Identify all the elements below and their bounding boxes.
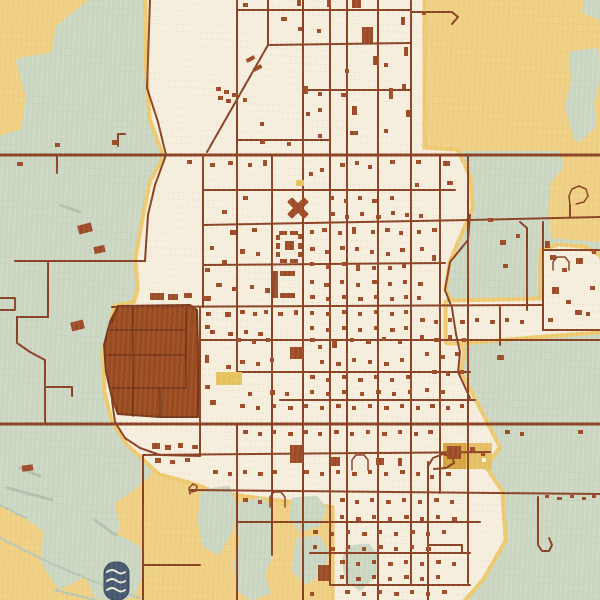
building-footprint: [372, 199, 377, 203]
building-footprint: [342, 375, 346, 379]
pool-feature: [104, 562, 129, 600]
building-footprint: [320, 168, 324, 172]
building-footprint: [310, 338, 315, 342]
building-footprint: [276, 243, 280, 249]
building-footprint: [388, 517, 392, 521]
building-footprint: [265, 288, 270, 293]
building-footprint: [248, 392, 252, 396]
building-footprint: [592, 495, 596, 498]
building-footprint: [298, 27, 302, 31]
building-footprint: [303, 86, 308, 94]
building-footprint: [326, 265, 331, 269]
building-footprint: [317, 29, 321, 33]
building-footprint: [406, 110, 410, 117]
building-footprint: [342, 326, 347, 330]
building-footprint: [344, 199, 348, 203]
building-footprint: [17, 162, 23, 166]
building-footprint: [566, 300, 571, 304]
building-footprint: [422, 11, 426, 15]
building-footprint: [372, 280, 377, 284]
building-footprint: [232, 93, 237, 97]
building-footprint: [400, 248, 405, 252]
building-footprint: [187, 160, 192, 164]
building-footprint: [575, 310, 582, 315]
building-footprint: [326, 328, 330, 332]
building-footprint: [372, 515, 376, 519]
building-footprint: [590, 286, 595, 290]
building-footprint: [434, 498, 439, 502]
building-footprint: [390, 196, 394, 200]
building-footprint: [362, 592, 366, 596]
building-footprint: [420, 517, 424, 521]
building-footprint: [330, 532, 334, 536]
building-footprint: [222, 210, 227, 214]
building-footprint: [330, 212, 335, 216]
building-footprint: [155, 458, 161, 463]
building-footprint: [417, 296, 421, 300]
building-footprint: [240, 404, 245, 408]
building-footprint: [368, 404, 372, 408]
building-footprint: [298, 252, 302, 257]
building-footprint: [310, 592, 314, 596]
building-footprint: [426, 592, 430, 596]
building-footprint: [248, 163, 252, 167]
building-footprint: [475, 318, 479, 322]
building-footprint: [420, 247, 424, 251]
building-footprint: [276, 235, 280, 240]
building-footprint: [371, 230, 375, 234]
building-footprint: [218, 96, 223, 100]
building-footprint: [270, 358, 274, 362]
building-footprint: [384, 406, 389, 410]
building-footprint: [446, 472, 451, 476]
building-footprint: [550, 255, 556, 260]
building-footprint: [228, 472, 232, 476]
building-footprint: [264, 310, 268, 314]
building-footprint: [582, 497, 586, 500]
building-footprint: [386, 252, 390, 256]
building-footprint: [382, 337, 386, 341]
building-footprint: [586, 312, 590, 316]
building-footprint: [280, 293, 295, 298]
building-footprint: [447, 181, 453, 185]
building-footprint: [384, 63, 388, 67]
building-footprint: [216, 372, 242, 385]
building-footprint: [256, 252, 260, 256]
building-footprint: [450, 500, 454, 504]
building-footprint: [355, 247, 359, 251]
building-footprint: [332, 340, 337, 348]
building-footprint: [400, 404, 404, 408]
building-footprint: [404, 560, 408, 564]
building-footprint: [368, 165, 372, 169]
building-footprint: [358, 328, 362, 332]
building-footprint: [240, 249, 245, 254]
building-footprint: [205, 355, 209, 363]
building-footprint: [440, 390, 445, 394]
building-footprint: [340, 246, 345, 250]
building-footprint: [256, 406, 260, 410]
building-footprint: [382, 432, 387, 436]
building-footprint: [390, 297, 394, 301]
building-footprint: [432, 255, 436, 261]
green-area: [569, 52, 597, 138]
building-footprint: [326, 297, 330, 301]
building-footprint: [318, 565, 330, 581]
building-footprint: [503, 264, 508, 268]
building-footprint: [178, 443, 183, 448]
building-footprint: [345, 215, 349, 219]
building-footprint: [296, 180, 304, 186]
building-footprint: [440, 355, 445, 359]
building-footprint: [447, 446, 461, 459]
building-footprint: [378, 590, 382, 594]
building-footprint: [418, 500, 422, 504]
building-footprint: [390, 312, 394, 316]
building-footprint: [306, 112, 310, 116]
building-footprint: [390, 378, 394, 382]
building-footprint: [426, 532, 430, 536]
building-footprint: [205, 385, 210, 389]
building-footprint: [290, 259, 298, 263]
building-footprint: [310, 311, 314, 315]
building-footprint: [414, 432, 418, 436]
building-footprint: [403, 280, 407, 284]
building-footprint: [552, 287, 559, 294]
map-canvas[interactable]: [0, 0, 600, 600]
building-footprint: [368, 470, 372, 474]
building-footprint: [260, 122, 264, 126]
building-footprint: [304, 430, 308, 434]
building-footprint: [152, 443, 160, 449]
building-footprint: [420, 577, 424, 581]
building-footprint: [150, 293, 164, 300]
building-footprint: [310, 280, 314, 284]
building-footprint: [373, 56, 379, 65]
building-footprint: [426, 547, 431, 551]
building-footprint: [358, 196, 362, 200]
building-footprint: [398, 340, 402, 344]
building-footprint: [326, 392, 331, 396]
building-footprint: [352, 227, 356, 234]
building-footprint: [287, 142, 291, 146]
building-footprint: [448, 335, 452, 339]
building-footprint: [376, 458, 384, 465]
building-footprint: [391, 211, 395, 215]
building-footprint: [404, 326, 408, 330]
building-footprint: [420, 318, 425, 322]
building-footprint: [243, 196, 248, 200]
building-footprint: [258, 472, 263, 476]
building-footprint: [436, 515, 440, 519]
building-footprint: [417, 230, 421, 234]
building-footprint: [545, 495, 549, 498]
building-footprint: [216, 87, 221, 91]
building-footprint: [384, 362, 389, 366]
building-footprint: [358, 312, 362, 316]
building-footprint: [310, 326, 314, 330]
building-footprint: [385, 228, 390, 232]
building-footprint: [228, 161, 233, 165]
building-footprint: [520, 432, 524, 436]
building-footprint: [434, 338, 439, 342]
building-footprint: [378, 545, 383, 549]
building-footprint: [404, 575, 409, 579]
building-footprint: [336, 362, 341, 366]
building-footprint: [278, 312, 283, 316]
building-footprint: [562, 268, 567, 272]
building-footprint: [288, 432, 293, 436]
building-footprint: [310, 262, 314, 266]
building-footprint: [341, 93, 346, 97]
building-footprint: [388, 577, 392, 581]
building-footprint: [210, 246, 214, 250]
building-footprint: [324, 283, 329, 287]
building-footprint: [418, 282, 423, 286]
building-footprint: [402, 84, 406, 89]
building-footprint: [340, 515, 344, 519]
building-footprint: [398, 458, 402, 466]
building-footprint: [443, 161, 450, 166]
building-footprint: [368, 360, 372, 364]
building-footprint: [570, 495, 574, 498]
building-footprint: [362, 532, 367, 536]
building-footprint: [243, 3, 248, 7]
building-footprint: [372, 266, 376, 270]
building-footprint: [425, 352, 429, 356]
building-footprint: [322, 228, 327, 232]
building-footprint: [252, 228, 257, 232]
building-footprint: [342, 310, 346, 314]
building-footprint: [226, 365, 231, 369]
building-footprint: [240, 360, 245, 364]
building-footprint: [372, 560, 376, 564]
building-footprint: [420, 335, 424, 339]
building-footprint: [378, 530, 382, 534]
building-footprint: [310, 247, 315, 251]
building-footprint: [374, 375, 378, 379]
building-footprint: [326, 312, 331, 316]
building-footprint: [253, 312, 257, 316]
building-footprint: [250, 285, 254, 289]
building-footprint: [185, 458, 190, 462]
building-footprint: [318, 92, 322, 96]
building-footprint: [401, 17, 405, 25]
building-footprint: [342, 390, 346, 394]
building-footprint: [192, 445, 198, 449]
building-footprint: [243, 430, 248, 434]
building-footprint: [213, 470, 218, 474]
building-footprint: [310, 230, 314, 234]
building-footprint: [455, 352, 459, 356]
building-footprint: [384, 129, 388, 133]
building-footprint: [370, 498, 374, 502]
building-footprint: [462, 338, 466, 342]
building-footprint: [360, 212, 364, 216]
building-footprint: [310, 295, 315, 299]
building-footprint: [442, 530, 446, 534]
building-footprint: [392, 392, 396, 396]
building-footprint: [394, 592, 399, 596]
building-footprint: [362, 27, 373, 43]
building-footprint: [290, 231, 298, 235]
building-footprint: [404, 515, 409, 519]
building-footprint: [406, 375, 410, 379]
building-footprint: [112, 140, 118, 145]
building-footprint: [170, 460, 175, 464]
building-footprint: [428, 430, 433, 434]
building-footprint: [318, 432, 322, 436]
building-footprint: [203, 296, 211, 301]
building-footprint: [281, 17, 287, 21]
building-footprint: [165, 445, 171, 450]
building-footprint: [408, 390, 412, 394]
building-footprint: [260, 140, 265, 144]
building-footprint: [168, 294, 178, 300]
building-footprint: [205, 268, 210, 272]
building-footprint: [290, 445, 302, 463]
building-footprint: [576, 258, 583, 264]
building-footprint: [330, 547, 335, 551]
building-footprint: [184, 293, 192, 298]
building-footprint: [320, 406, 324, 410]
green-area: [586, 0, 600, 16]
building-footprint: [288, 406, 293, 410]
campus-area: [104, 305, 198, 417]
building-footprint: [285, 241, 294, 250]
building-footprint: [304, 470, 309, 474]
building-footprint: [350, 338, 354, 342]
building-footprint: [222, 260, 227, 264]
building-footprint: [358, 378, 363, 382]
building-footprint: [430, 404, 435, 408]
building-footprint: [294, 310, 298, 315]
building-footprint: [446, 406, 450, 410]
building-footprint: [460, 370, 464, 374]
building-footprint: [366, 430, 370, 434]
building-footprint: [318, 108, 322, 112]
building-footprint: [490, 320, 495, 324]
building-footprint: [356, 577, 361, 581]
building-footprint: [578, 430, 583, 434]
building-footprint: [460, 404, 464, 408]
building-footprint: [399, 231, 403, 235]
building-footprint: [320, 472, 324, 476]
building-footprint: [313, 530, 318, 534]
building-footprint: [276, 252, 280, 257]
building-footprint: [336, 470, 340, 474]
building-footprint: [442, 590, 447, 594]
building-footprint: [297, 0, 301, 6]
building-footprint: [394, 547, 398, 551]
building-footprint: [258, 332, 263, 336]
building-footprint: [55, 143, 60, 147]
building-footprint: [470, 447, 475, 452]
building-footprint: [346, 545, 350, 549]
pond: [236, 500, 272, 598]
building-footprint: [330, 196, 334, 200]
building-footprint: [356, 264, 360, 271]
building-footprint: [404, 310, 408, 314]
building-footprint: [216, 283, 222, 287]
building-footprint: [481, 452, 485, 456]
building-footprint: [327, 0, 331, 7]
building-footprint: [256, 362, 260, 366]
building-footprint: [415, 183, 419, 187]
building-footprint: [505, 430, 510, 434]
building-footprint: [497, 355, 504, 360]
building-footprint: [336, 404, 341, 408]
building-footprint: [488, 218, 493, 222]
building-footprint: [420, 562, 424, 566]
building-footprint: [320, 360, 324, 364]
building-footprint: [318, 134, 322, 138]
building-footprint: [432, 370, 437, 374]
building-footprint: [272, 430, 276, 434]
town-map-svg: [0, 0, 600, 600]
pond: [292, 498, 324, 530]
building-footprint: [342, 295, 346, 299]
building-footprint: [482, 458, 486, 462]
building-footprint: [340, 163, 345, 167]
building-footprint: [326, 378, 330, 382]
building-footprint: [390, 160, 395, 164]
building-footprint: [290, 347, 303, 359]
building-footprint: [345, 69, 349, 73]
building-footprint: [372, 575, 376, 579]
building-footprint: [376, 215, 381, 219]
building-footprint: [352, 406, 356, 410]
building-footprint: [370, 250, 374, 254]
building-footprint: [258, 432, 262, 436]
building-footprint: [452, 562, 456, 566]
building-footprint: [355, 161, 359, 165]
building-footprint: [206, 312, 211, 316]
building-footprint: [452, 517, 457, 521]
building-footprint: [386, 500, 391, 504]
building-footprint: [243, 498, 248, 502]
building-footprint: [410, 530, 415, 534]
building-footprint: [304, 404, 308, 408]
building-footprint: [340, 280, 344, 284]
building-footprint: [330, 457, 340, 466]
building-footprint: [366, 340, 371, 344]
building-footprint: [352, 106, 357, 115]
building-footprint: [416, 472, 420, 476]
building-footprint: [340, 560, 345, 564]
building-footprint: [270, 390, 275, 395]
school-lot-light: [466, 443, 492, 469]
campus-grounds: [104, 305, 198, 417]
building-footprint: [356, 517, 361, 521]
building-footprint: [350, 432, 354, 436]
building-footprint: [334, 430, 339, 434]
building-footprint: [236, 338, 241, 342]
building-footprint: [273, 470, 277, 474]
building-footprint: [520, 320, 524, 324]
building-footprint: [548, 318, 553, 322]
building-footprint: [313, 545, 317, 549]
building-footprint: [410, 545, 414, 549]
building-footprint: [240, 310, 245, 314]
building-footprint: [545, 241, 550, 248]
building-footprint: [400, 470, 405, 474]
building-footprint: [345, 590, 350, 594]
building-footprint: [226, 99, 231, 103]
building-footprint: [310, 375, 315, 379]
building-footprint: [360, 392, 364, 396]
building-footprint: [374, 295, 378, 299]
